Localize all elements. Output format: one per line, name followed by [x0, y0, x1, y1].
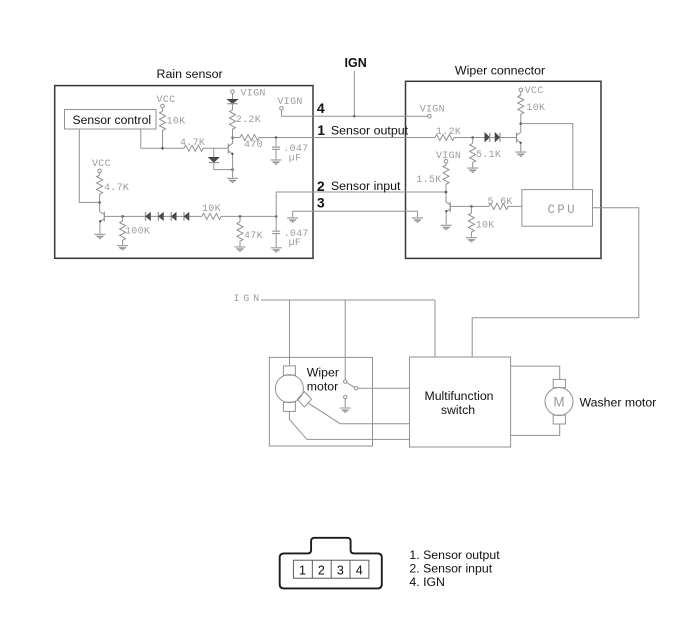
- svg-text:1: 1: [299, 563, 306, 577]
- svg-text:1.5K: 1.5K: [416, 175, 441, 186]
- svg-text:M: M: [553, 394, 564, 409]
- svg-text:IGN: IGN: [345, 56, 367, 70]
- svg-text:switch: switch: [441, 403, 475, 417]
- svg-text:VIGN: VIGN: [241, 88, 266, 99]
- svg-text:VCC: VCC: [157, 95, 176, 106]
- svg-text:VCC: VCC: [525, 86, 544, 97]
- svg-text:CPU: CPU: [548, 203, 577, 217]
- svg-text:5.6K: 5.6K: [488, 197, 513, 208]
- svg-text:100K: 100K: [125, 227, 150, 238]
- svg-text:1.2K: 1.2K: [436, 127, 461, 138]
- svg-text:5.1K: 5.1K: [476, 150, 501, 161]
- svg-text:3: 3: [317, 195, 325, 211]
- svg-text:Sensor input: Sensor input: [331, 179, 401, 193]
- svg-text:VCC: VCC: [92, 159, 111, 170]
- svg-text:470: 470: [244, 140, 263, 151]
- svg-text:4: 4: [317, 100, 325, 116]
- svg-text:VIGN: VIGN: [436, 151, 461, 162]
- svg-text:motor: motor: [307, 380, 338, 394]
- svg-text:4. IGN: 4. IGN: [409, 575, 445, 589]
- svg-text:10K: 10K: [526, 103, 545, 114]
- svg-text:4.7K: 4.7K: [180, 138, 205, 149]
- svg-text:Rain sensor: Rain sensor: [157, 67, 223, 81]
- svg-text:10K: 10K: [476, 221, 495, 232]
- svg-text:Sensor output: Sensor output: [331, 124, 409, 138]
- svg-text:µF: µF: [289, 153, 302, 164]
- svg-text:4.7K: 4.7K: [104, 183, 129, 194]
- svg-text:IGN: IGN: [234, 294, 263, 305]
- svg-text:2.2K: 2.2K: [236, 115, 261, 126]
- svg-text:Washer motor: Washer motor: [580, 396, 657, 410]
- svg-text:Multifunction: Multifunction: [424, 389, 493, 403]
- svg-text:VIGN: VIGN: [420, 104, 445, 115]
- svg-text:1. Sensor output: 1. Sensor output: [409, 548, 500, 562]
- svg-text:4: 4: [356, 563, 363, 577]
- svg-text:VIGN: VIGN: [278, 97, 303, 108]
- svg-text:2. Sensor input: 2. Sensor input: [409, 562, 492, 576]
- svg-text:1: 1: [317, 122, 325, 138]
- svg-text:Sensor control: Sensor control: [73, 113, 152, 127]
- svg-text:µF: µF: [289, 238, 302, 249]
- svg-text:Wiper connector: Wiper connector: [455, 64, 545, 78]
- svg-text:3: 3: [337, 563, 344, 577]
- svg-text:10K: 10K: [202, 204, 221, 215]
- svg-text:10K: 10K: [167, 116, 186, 127]
- svg-text:2: 2: [318, 563, 325, 577]
- svg-text:Wiper: Wiper: [307, 365, 339, 379]
- svg-text:2: 2: [317, 178, 325, 194]
- svg-text:47K: 47K: [244, 231, 263, 242]
